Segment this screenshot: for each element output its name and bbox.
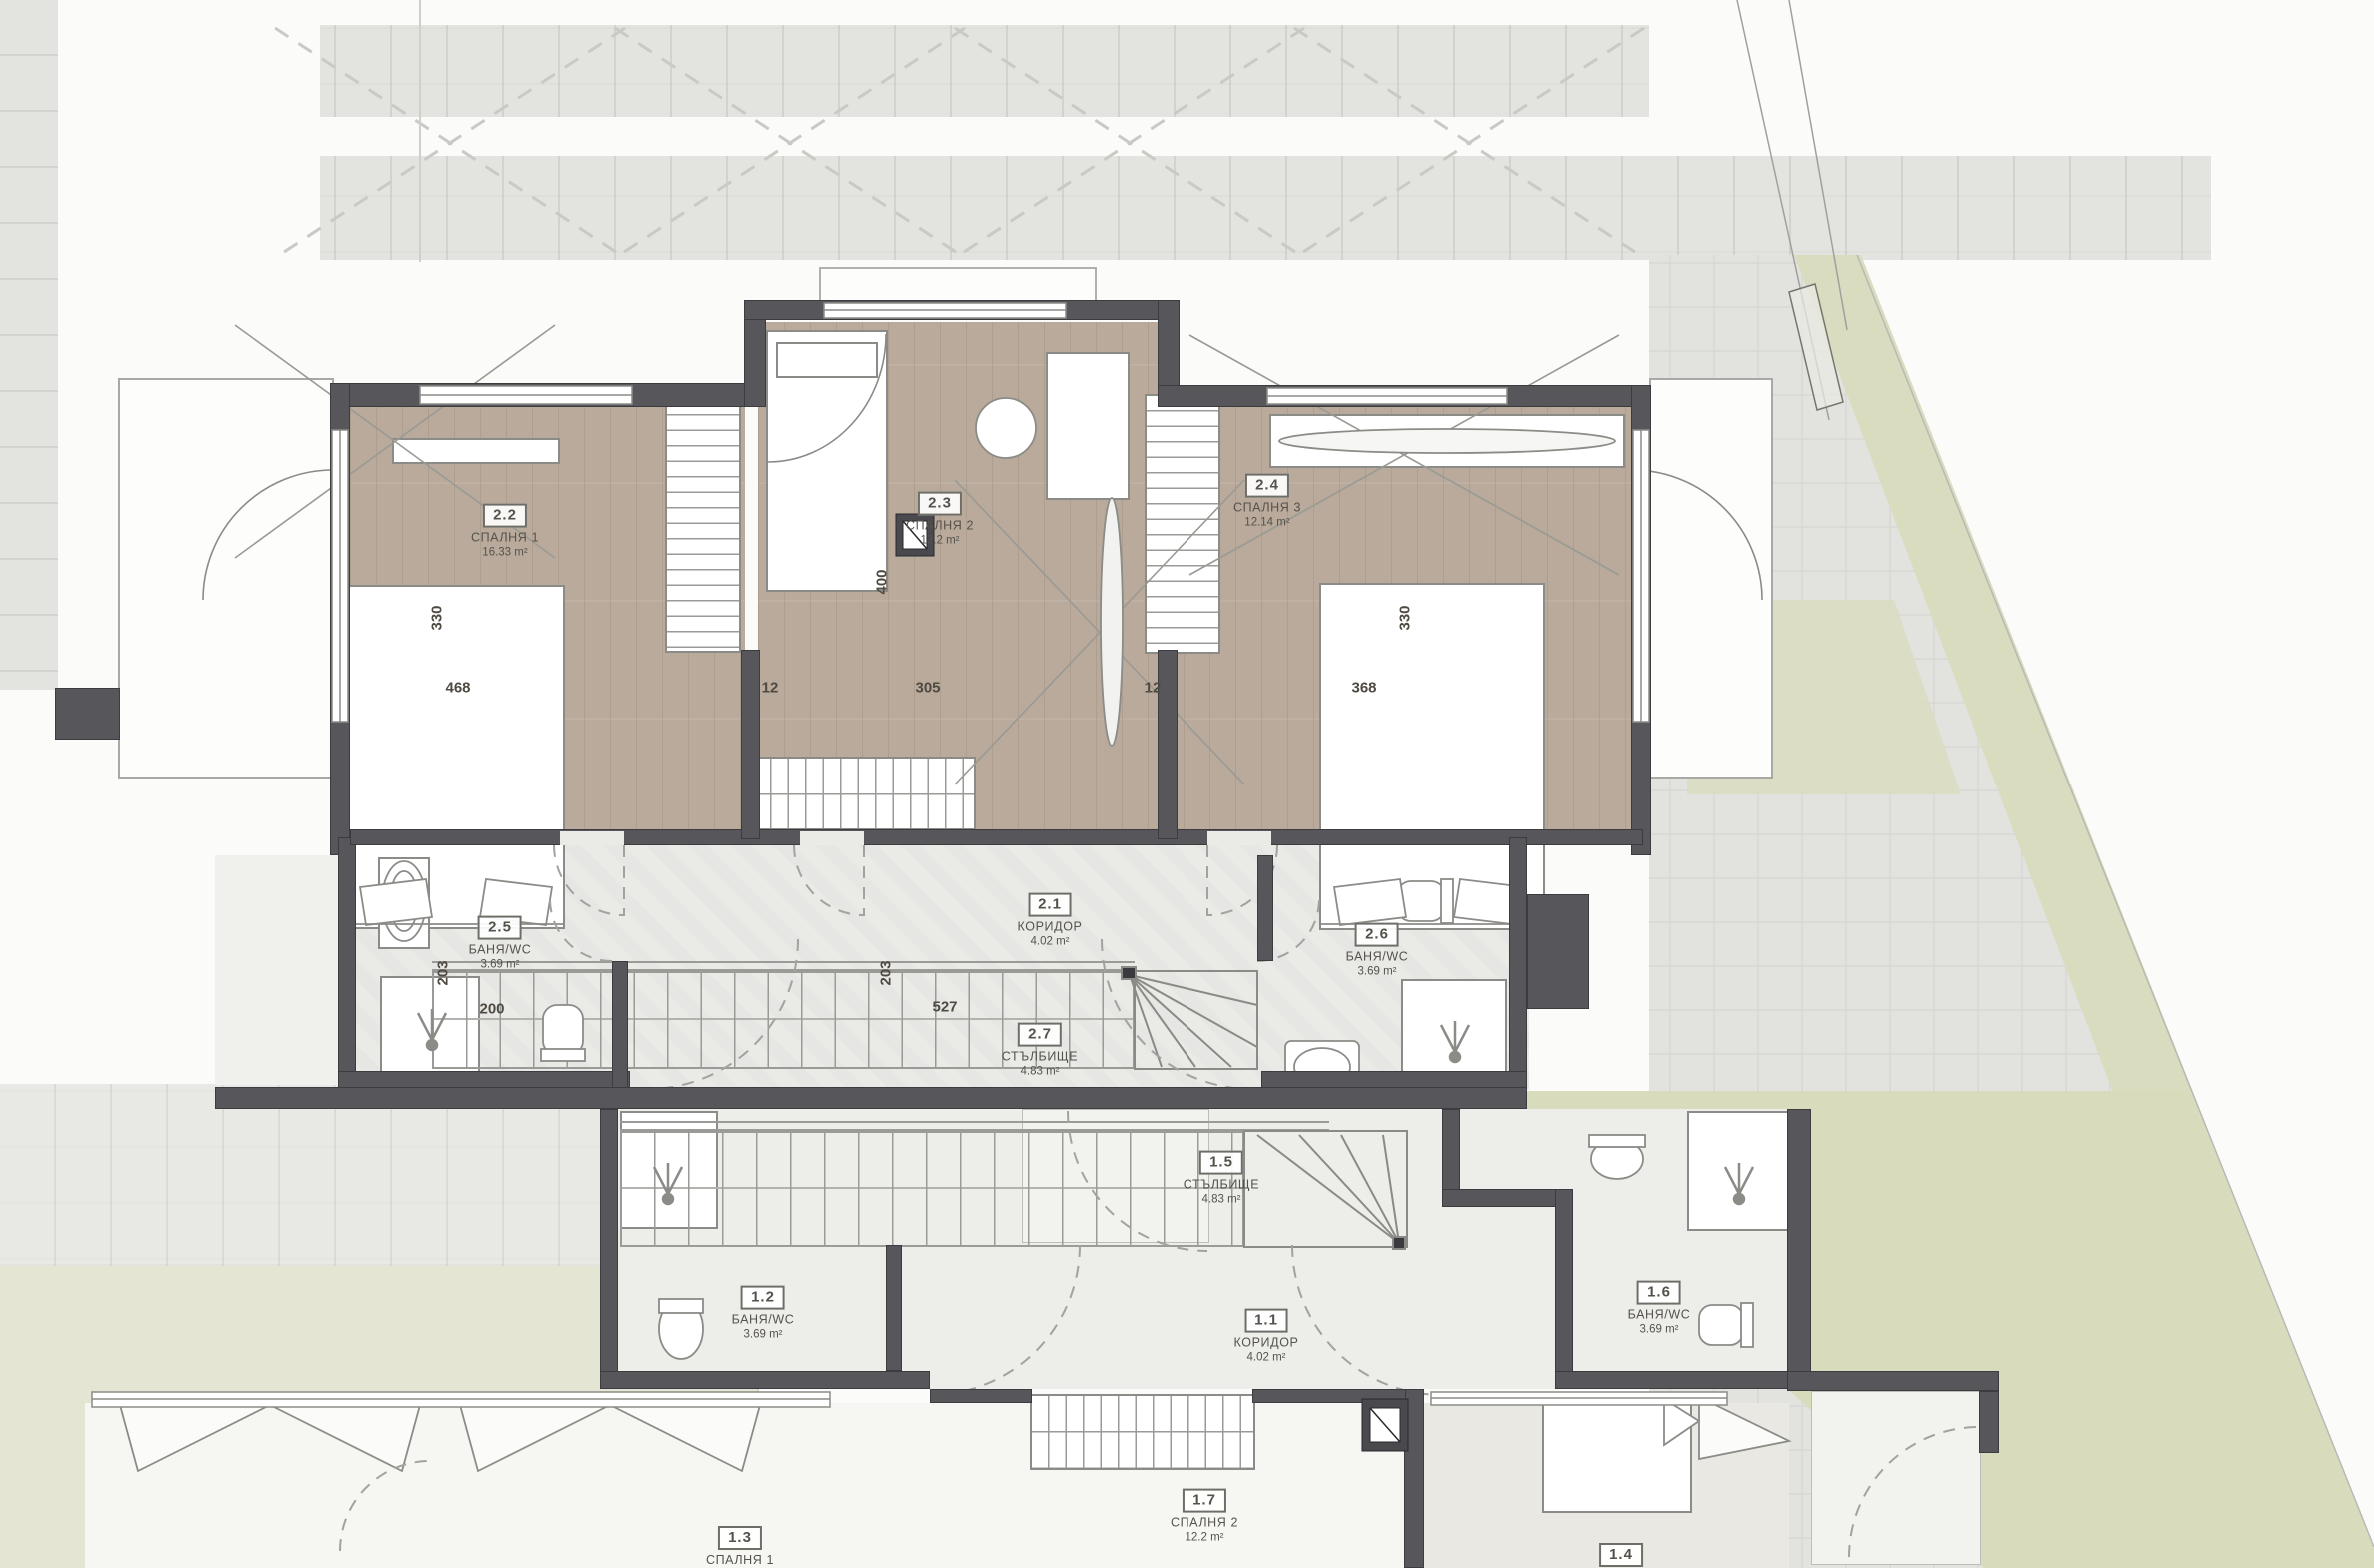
room-area: 4.83 m²	[1002, 1066, 1078, 1080]
dim-203-stair: 203	[878, 960, 895, 985]
room-name: БАНЯ/WC	[732, 1313, 795, 1328]
room-label-1-2: 1.2 БАНЯ/WC 3.69 m²	[732, 1286, 795, 1343]
room-area: 4.83 m²	[1184, 1194, 1259, 1208]
room-number: 2.4	[1245, 474, 1289, 498]
dim-330-left: 330	[429, 605, 446, 630]
room-name: КОРИДОР	[1018, 920, 1083, 935]
door-gaps	[560, 831, 1271, 845]
room-number: 1.5	[1199, 1151, 1243, 1175]
room-label-2-3: 2.3 СПАЛНЯ 2 12.2 m²	[906, 492, 974, 549]
room-number: 2.1	[1028, 893, 1072, 917]
room-number: 2.5	[478, 916, 522, 940]
floor-plan: 2.2 СПАЛНЯ 1 16.33 m² 2.3 СПАЛНЯ 2 12.2 …	[0, 0, 2374, 1568]
room-name: СТЪЛБИЩЕ	[1002, 1050, 1078, 1065]
room-number: 1.1	[1244, 1309, 1288, 1333]
room-area: 4.02 m²	[1234, 1352, 1299, 1366]
room-label-2-7: 2.7 СТЪЛБИЩЕ 4.83 m²	[1002, 1023, 1078, 1080]
room-area: 3.69 m²	[1628, 1324, 1691, 1338]
room-label-2-2: 2.2 СПАЛНЯ 1 16.33 m²	[471, 504, 539, 561]
room-area: 12.2 m²	[906, 535, 974, 549]
room-number: 1.2	[741, 1286, 785, 1310]
dim-368: 368	[1351, 680, 1376, 697]
room-label-2-6: 2.6 БАНЯ/WC 3.69 m²	[1346, 923, 1409, 980]
room-area: 4.02 m²	[1018, 936, 1083, 950]
room-name: СПАЛНЯ 1	[706, 1553, 774, 1568]
room-label-2-1: 2.1 КОРИДОР 4.02 m²	[1018, 893, 1083, 950]
room-label-1-4: 1.4	[1599, 1543, 1643, 1567]
dim-468: 468	[445, 680, 470, 697]
room-number: 2.7	[1018, 1023, 1062, 1047]
room-name: БАНЯ/WC	[1628, 1308, 1691, 1323]
room-number: 1.6	[1637, 1281, 1681, 1305]
openings-layer	[0, 0, 2374, 1568]
dim-12-right: 12	[1145, 680, 1162, 697]
dim-400: 400	[874, 569, 891, 594]
room-number: 2.6	[1355, 923, 1399, 947]
room-area: 3.69 m²	[732, 1329, 795, 1343]
room-number: 1.3	[718, 1526, 762, 1550]
room-number: 2.2	[483, 504, 527, 528]
dim-305: 305	[915, 680, 940, 697]
room-label-1-1: 1.1 КОРИДОР 4.02 m²	[1234, 1309, 1299, 1366]
room-label-2-5: 2.5 БАНЯ/WC 3.69 m²	[469, 916, 532, 973]
room-area: 16.33 m²	[471, 547, 539, 561]
room-number: 1.7	[1183, 1489, 1226, 1513]
room-name: БАНЯ/WC	[469, 943, 532, 958]
room-label-1-3: 1.3 СПАЛНЯ 1	[706, 1526, 774, 1568]
chimneys	[896, 514, 1408, 1451]
windows	[92, 303, 1727, 1407]
room-name: СПАЛНЯ 1	[471, 531, 539, 546]
room-area: 3.69 m²	[469, 959, 532, 973]
room-label-1-7: 1.7 СПАЛНЯ 2 12.2 m²	[1171, 1489, 1238, 1546]
room-area: 12.14 m²	[1233, 517, 1301, 531]
room-label-1-5: 1.5 СТЪЛБИЩЕ 4.83 m²	[1184, 1151, 1259, 1208]
room-name: БАНЯ/WC	[1346, 950, 1409, 965]
room-name: СПАЛНЯ 2	[1171, 1516, 1238, 1531]
dim-203-bath: 203	[435, 960, 452, 985]
room-area: 3.69 m²	[1346, 966, 1409, 980]
dim-200: 200	[479, 1001, 504, 1018]
room-name: КОРИДОР	[1234, 1336, 1299, 1351]
room-label-2-4: 2.4 СПАЛНЯ 3 12.14 m²	[1233, 474, 1301, 531]
room-number: 2.3	[918, 492, 962, 516]
dim-527: 527	[932, 999, 957, 1016]
room-name: СТЪЛБИЩЕ	[1184, 1178, 1259, 1193]
dim-12-left: 12	[762, 680, 779, 697]
room-label-1-6: 1.6 БАНЯ/WC 3.69 m²	[1628, 1281, 1691, 1338]
room-name: СПАЛНЯ 2	[906, 519, 974, 534]
room-name: СПАЛНЯ 3	[1233, 501, 1301, 516]
room-area: 12.2 m²	[1171, 1532, 1238, 1546]
room-number: 1.4	[1599, 1543, 1643, 1567]
dim-330-right: 330	[1397, 605, 1414, 630]
